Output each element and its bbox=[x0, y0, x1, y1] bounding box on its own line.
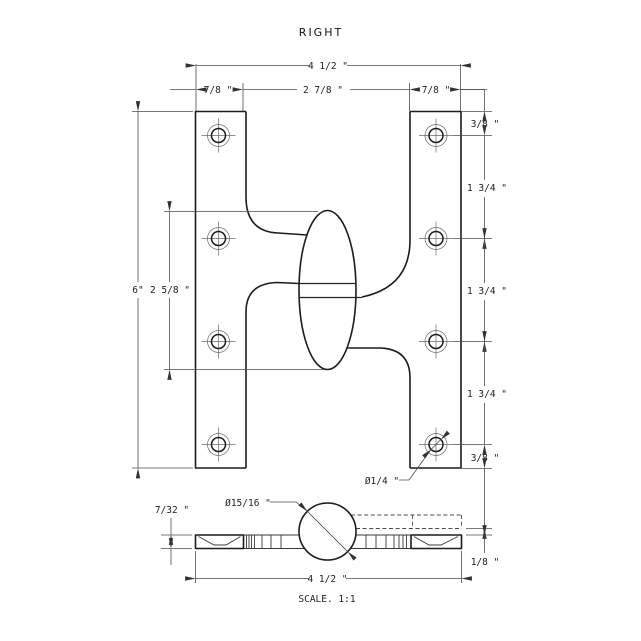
hinge-technical-drawing: RIGHT 4 1/2 " 7/8 " bbox=[0, 0, 641, 641]
left-leaf-outline bbox=[196, 112, 247, 469]
upper-leaf-hidden bbox=[351, 515, 462, 529]
dim-right-leaf-width-label: 7/8 " bbox=[422, 85, 451, 96]
right-countersink-block bbox=[411, 535, 462, 549]
dim-edge-to-hole-top-label: 3/8 " bbox=[471, 119, 500, 130]
knuckle-ellipse bbox=[299, 211, 356, 370]
dim-hole-to-edge-bottom-label: 3/8 " bbox=[471, 453, 500, 464]
bottom-view bbox=[196, 503, 462, 560]
view-title: RIGHT bbox=[299, 26, 343, 39]
left-hatching bbox=[247, 535, 282, 549]
dim-knuckle-diameter-label: Ø15/16 " bbox=[225, 498, 271, 509]
dim-leaf-offset-label: 1/8 " bbox=[471, 557, 500, 568]
scale-note: SCALE. 1:1 bbox=[298, 594, 355, 605]
left-countersink-profile bbox=[199, 537, 241, 546]
dim-hole-spacing-3-label: 1 3/4 " bbox=[467, 389, 507, 400]
left-dimensions: 6" 2 5/8 " bbox=[132, 112, 325, 469]
front-view bbox=[196, 112, 462, 469]
left-leaf-upper-tongue-edge bbox=[246, 112, 307, 236]
right-leaf-upper-tongue-edge bbox=[362, 112, 410, 298]
dim-hole-diameter-label: Ø1/4 " bbox=[365, 476, 399, 487]
left-leaf-lower-tongue-edge bbox=[246, 283, 299, 469]
dim-left-leaf-width-label: 7/8 " bbox=[204, 85, 233, 96]
dim-knuckle-height-label: 2 5/8 " bbox=[150, 285, 190, 296]
dim-bottom-width-label: 4 1/2 " bbox=[307, 574, 347, 585]
dim-hole-spacing-1-label: 1 3/4 " bbox=[467, 183, 507, 194]
dim-hole-spacing-2-label: 1 3/4 " bbox=[467, 286, 507, 297]
dim-height-total-label: 6" bbox=[132, 285, 143, 296]
right-leaf-outline bbox=[410, 112, 461, 469]
dim-leaf-thickness-label: 7/32 " bbox=[155, 505, 189, 516]
top-dimensions: 4 1/2 " 7/8 " 2 7/8 " 7/8 " bbox=[170, 61, 487, 111]
left-countersink-block bbox=[196, 535, 244, 549]
dim-top-width-label: 4 1/2 " bbox=[308, 61, 348, 72]
dim-gap-width-label: 2 7/8 " bbox=[303, 85, 343, 96]
right-countersink-profile bbox=[414, 537, 458, 546]
right-hatching bbox=[366, 535, 407, 549]
right-leaf-lower-tongue-edge bbox=[347, 348, 410, 468]
drawing-sheet: RIGHT 4 1/2 " 7/8 " bbox=[0, 0, 641, 641]
